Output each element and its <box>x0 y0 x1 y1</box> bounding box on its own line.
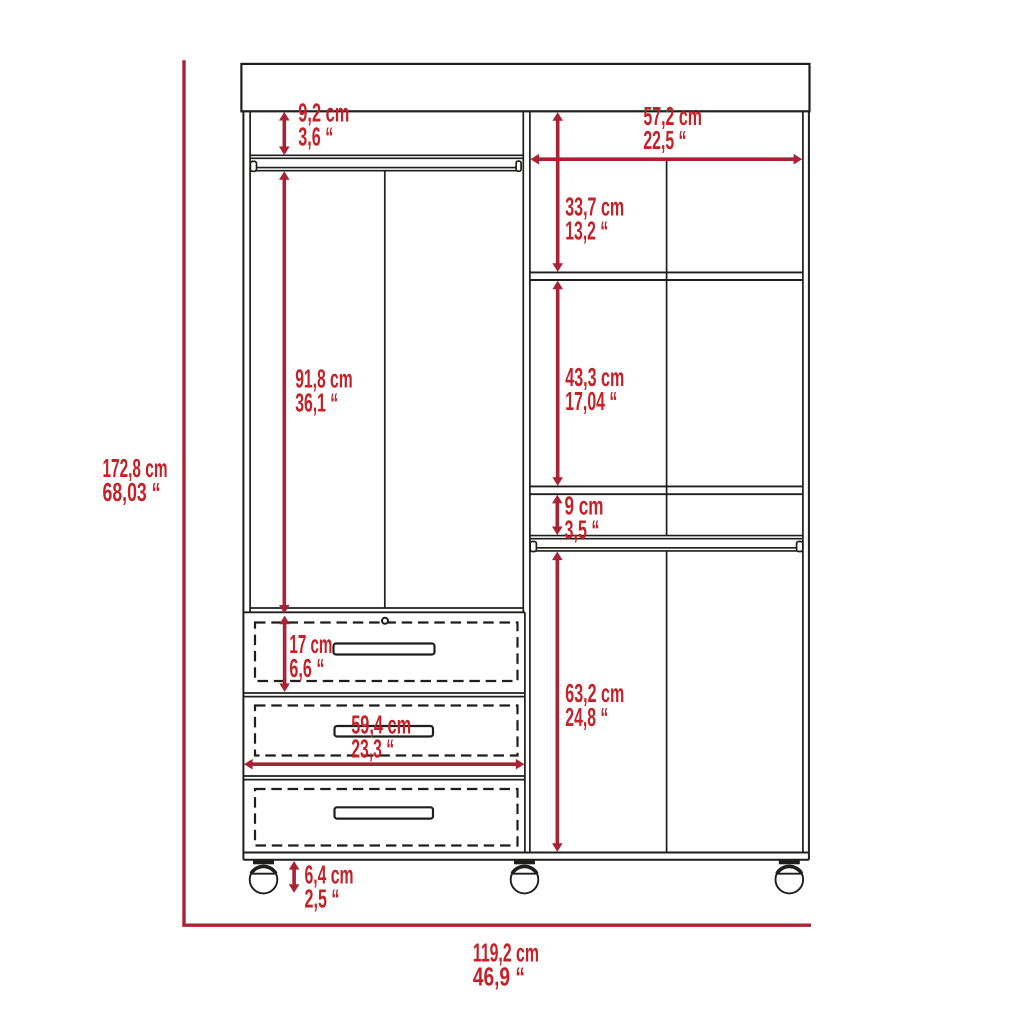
svg-text:36,1 “: 36,1 “ <box>295 387 338 417</box>
svg-text:3,6 “: 3,6 “ <box>298 121 333 151</box>
svg-text:46,9 “: 46,9 “ <box>473 962 525 992</box>
svg-text:2,5 “: 2,5 “ <box>305 883 340 913</box>
svg-text:23,3 “: 23,3 “ <box>351 734 394 764</box>
svg-text:24,8 “: 24,8 “ <box>565 702 608 732</box>
svg-text:6,6 “: 6,6 “ <box>289 653 324 683</box>
svg-text:68,03 “: 68,03 “ <box>103 477 161 507</box>
svg-text:22,5 “: 22,5 “ <box>643 125 686 155</box>
svg-text:3,5 “: 3,5 “ <box>565 515 600 545</box>
svg-text:13,2 “: 13,2 “ <box>565 215 608 245</box>
svg-text:17,04 “: 17,04 “ <box>565 386 617 416</box>
